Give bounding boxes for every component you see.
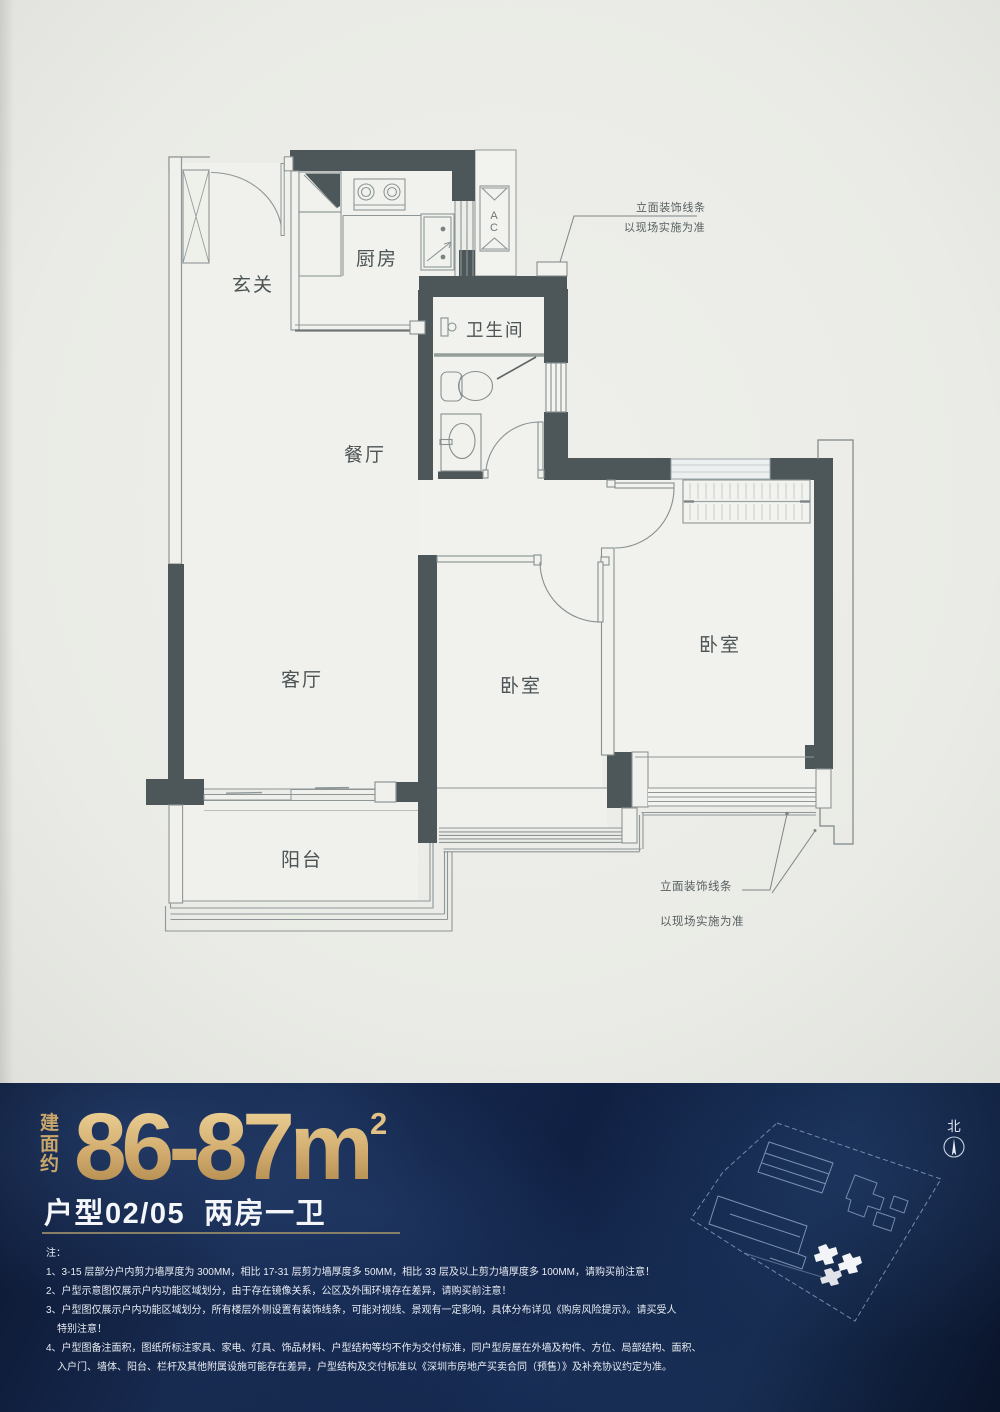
svg-text:以现场实施为准: 以现场实施为准 — [624, 220, 705, 234]
svg-text:玄关: 玄关 — [232, 274, 274, 296]
svg-text:客厅: 客厅 — [281, 669, 323, 691]
svg-text:餐厅: 餐厅 — [344, 444, 386, 466]
svg-text:C: C — [490, 222, 498, 234]
svg-text:立面装饰线条: 立面装饰线条 — [636, 200, 706, 214]
svg-text:A: A — [490, 210, 498, 222]
svg-text:卧室: 卧室 — [500, 675, 542, 697]
svg-text:厨房: 厨房 — [356, 248, 398, 270]
svg-text:北: 北 — [947, 1119, 961, 1134]
svg-text:卧室: 卧室 — [699, 634, 741, 656]
svg-text:阳台: 阳台 — [281, 849, 323, 871]
svg-text:立面装饰线条: 立面装饰线条 — [660, 879, 732, 893]
svg-text:以现场实施为准: 以现场实施为准 — [660, 914, 744, 928]
svg-text:卫生间: 卫生间 — [466, 320, 525, 340]
